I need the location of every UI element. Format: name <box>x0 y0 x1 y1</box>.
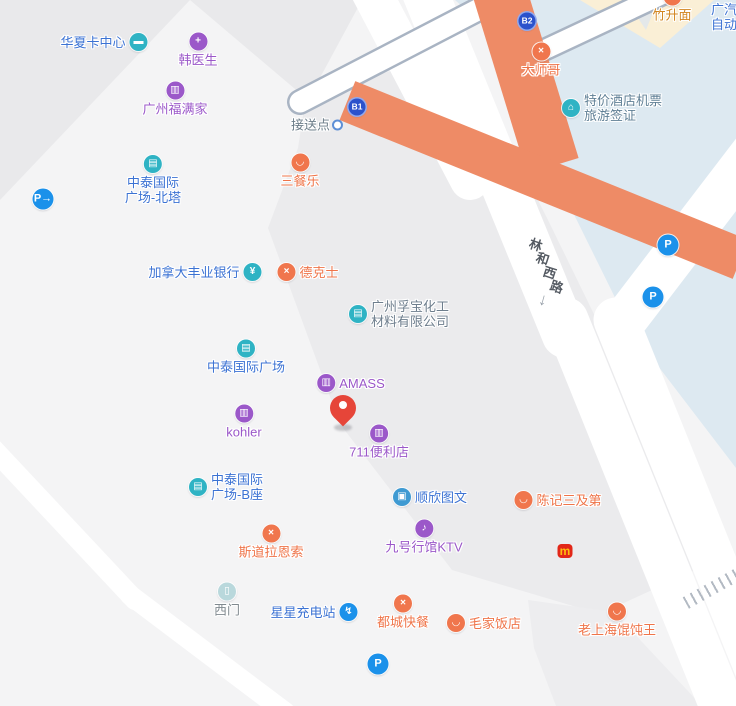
poi-xingxing-charging[interactable]: 星星充电站↯ <box>270 603 357 621</box>
poi-han-doctor[interactable]: +韩医生 <box>178 33 217 68</box>
shopping-bag-icon: ▥ <box>166 82 184 100</box>
building-icon: ▤ <box>349 305 367 323</box>
printer-icon: ▣ <box>393 488 411 506</box>
poi-label: 711便利店 <box>349 445 409 460</box>
poi-label: 斯道拉恩索 <box>238 545 303 560</box>
poi-parking-south[interactable]: P <box>368 654 389 675</box>
poi-label: 特价酒店机票 <box>584 93 662 108</box>
poi-jiuhao-ktv[interactable]: ♪九号行馆KTV <box>385 520 462 555</box>
poi-label: 老上海馄饨王 <box>578 623 656 638</box>
poi-label: 顺欣图文 <box>415 490 467 505</box>
poi-fubao-chemical[interactable]: ▤广州孚宝化工材料有限公司 <box>349 299 449 329</box>
poi-ducheng-fastfood[interactable]: ×都城快餐 <box>377 595 429 630</box>
poi-amass[interactable]: ▥AMASS <box>317 374 385 392</box>
poi-zhongtai-plaza[interactable]: ▤中泰国际广场 <box>207 340 285 375</box>
poi-zhongtai-plaza-b[interactable]: ▤中泰国际广场-B座 <box>189 472 263 502</box>
poi-label: 星星充电站 <box>270 605 335 620</box>
poi-label: 华夏卡中心 <box>60 35 125 50</box>
poi-dashige[interactable]: ×大师哥 <box>521 43 560 78</box>
poi-huaxia-card-center[interactable]: 华夏卡中心▬ <box>60 33 147 51</box>
cutlery-icon: × <box>532 43 550 61</box>
poi-label: 竹升面 <box>652 8 691 23</box>
poi-label: 接送点 <box>291 118 330 133</box>
poi-exit-b2[interactable]: B2 <box>519 13 536 30</box>
exit-b2-badge: B2 <box>519 13 536 30</box>
poi-parking-e[interactable]: P <box>643 287 664 308</box>
poi-label: 广场-北塔 <box>125 190 181 205</box>
parking-icon: P <box>658 235 679 256</box>
poi-label: 广州孚宝化工 <box>371 299 449 314</box>
cutlery-icon: × <box>277 263 295 281</box>
poi-zhushengmian[interactable]: ◡竹升面 <box>652 0 691 23</box>
exit-b1-badge: B1 <box>349 99 366 116</box>
poi-label: 三餐乐 <box>280 174 319 189</box>
poi-tejia-hotel-tickets[interactable]: ⌂特价酒店机票旅游签证 <box>562 93 662 123</box>
poi-guangqi-partial[interactable]: 广汽自动 <box>711 2 736 32</box>
yuan-icon: ¥ <box>244 263 262 281</box>
cutlery-icon: × <box>394 595 412 613</box>
poi-label: 自动 <box>711 17 736 32</box>
rice-bowl-icon: ◡ <box>514 491 532 509</box>
poi-exit-b1[interactable]: B1 <box>349 99 366 116</box>
poi-label: 大师哥 <box>521 63 560 78</box>
poi-label: 西门 <box>214 603 240 618</box>
poi-label: 德克士 <box>299 265 338 280</box>
poi-label: 广场-B座 <box>211 487 263 502</box>
poi-label: 中泰国际广场 <box>207 360 285 375</box>
building-icon: ▤ <box>237 340 255 358</box>
poi-pickup-point[interactable]: 接送点 <box>291 118 341 133</box>
poi-711-store[interactable]: ▥711便利店 <box>349 425 409 460</box>
rice-bowl-icon: ◡ <box>291 154 309 172</box>
rice-bowl-icon: ◡ <box>663 0 681 6</box>
poi-label: 加拿大丰业银行 <box>148 265 239 280</box>
poi-label: 材料有限公司 <box>371 314 449 329</box>
poi-maojia-restaurant[interactable]: ◡毛家饭店 <box>447 614 521 632</box>
hotel-ticket-icon: ⌂ <box>562 99 580 117</box>
poi-scotiabank[interactable]: 加拿大丰业银行¥ <box>148 263 261 281</box>
building-icon: ▤ <box>144 155 162 173</box>
poi-zhongtai-plaza-north-tower[interactable]: ▤中泰国际广场-北塔 <box>125 155 181 205</box>
rice-bowl-icon: ◡ <box>608 603 626 621</box>
poi-dicos[interactable]: ×德克士 <box>277 263 338 281</box>
storefront-icon: ▥ <box>370 425 388 443</box>
poi-label: 广州福满家 <box>142 102 207 117</box>
map-canvas[interactable]: 华夏卡中心▬+韩医生▥广州福满家▤中泰国际广场-北塔P→接送点B1B2◡三餐乐加… <box>0 0 736 706</box>
poi-label: kohler <box>226 425 261 440</box>
poi-west-gate[interactable]: ▯西门 <box>214 583 240 618</box>
road-southwest-upper <box>0 440 135 600</box>
medical-icon: + <box>189 33 207 51</box>
poi-stora-enso[interactable]: ×斯道拉恩索 <box>238 525 303 560</box>
poi-label: 广汽 <box>711 2 736 17</box>
cutlery-icon: × <box>262 525 280 543</box>
poi-label: 都城快餐 <box>377 615 429 630</box>
parking-icon: P <box>643 287 664 308</box>
parking-icon: P <box>368 654 389 675</box>
poi-label: 中泰国际 <box>211 472 263 487</box>
poi-parking-entrance[interactable]: P→ <box>33 189 54 210</box>
poi-kohler[interactable]: ▥kohler <box>226 405 261 440</box>
poi-shunxin-print[interactable]: ▣顺欣图文 <box>393 488 467 506</box>
poi-label: 韩医生 <box>178 53 217 68</box>
poi-label: 九号行馆KTV <box>385 540 462 555</box>
poi-guangzhou-fumanjia[interactable]: ▥广州福满家 <box>142 82 207 117</box>
pin-dot <box>339 401 347 409</box>
poi-label: 中泰国际 <box>127 175 179 190</box>
poi-label: 毛家饭店 <box>469 616 521 631</box>
poi-mcdonalds[interactable]: m <box>558 544 573 558</box>
parking-entrance-icon: P→ <box>33 189 54 210</box>
poi-label: AMASS <box>339 376 385 391</box>
poi-laoshanghai-wonton[interactable]: ◡老上海馄饨王 <box>578 603 656 638</box>
card-icon: ▬ <box>130 33 148 51</box>
shopping-bag-icon: ▥ <box>235 405 253 423</box>
pickup-dot-icon <box>334 122 341 129</box>
poi-sancanle[interactable]: ◡三餐乐 <box>280 154 319 189</box>
poi-label: 旅游签证 <box>584 108 636 123</box>
microphone-icon: ♪ <box>415 520 433 538</box>
poi-parking-ne[interactable]: P <box>658 235 679 256</box>
gate-icon: ▯ <box>218 583 236 601</box>
mcdonalds-icon: m <box>558 544 573 558</box>
rice-bowl-icon: ◡ <box>447 614 465 632</box>
road-southwest-lower <box>130 595 285 706</box>
shopping-bag-icon: ▥ <box>317 374 335 392</box>
charging-icon: ↯ <box>340 603 358 621</box>
building-icon: ▤ <box>189 478 207 496</box>
poi-chenji-sanjidi[interactable]: ◡陈记三及第 <box>514 491 601 509</box>
poi-label: 陈记三及第 <box>536 493 601 508</box>
